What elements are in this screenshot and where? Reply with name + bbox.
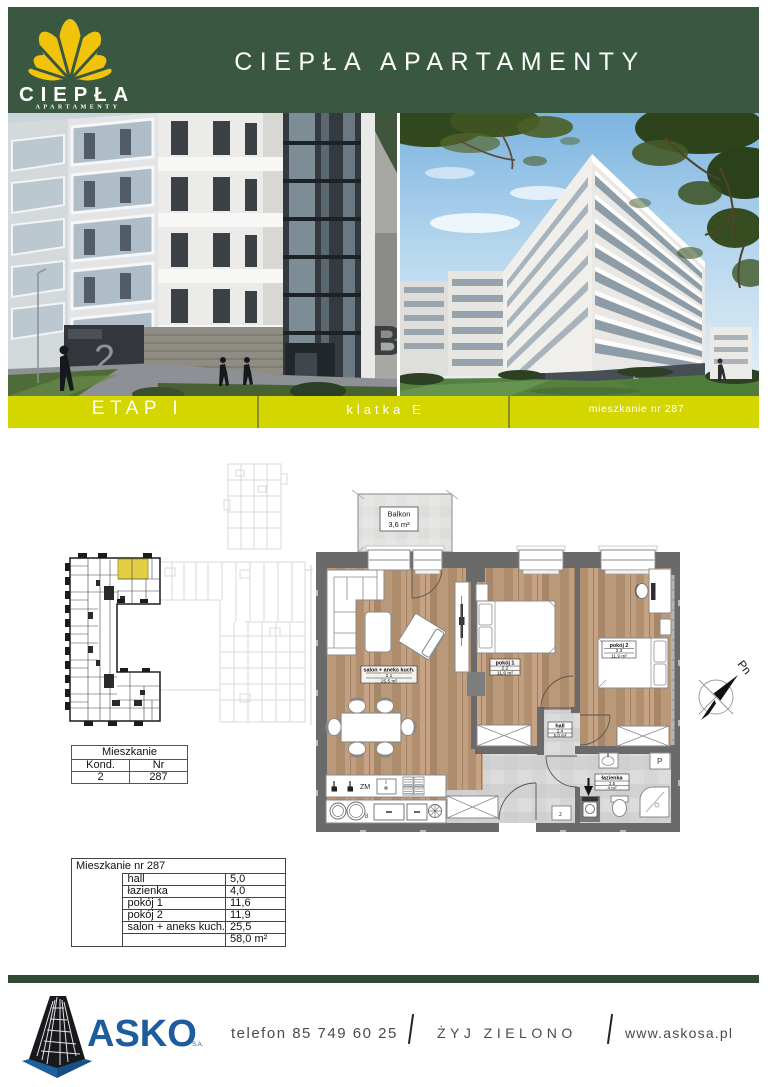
svg-text:ZM: ZM: [360, 784, 370, 791]
svg-text:z: z: [559, 812, 562, 818]
svg-text:S.A.: S.A.: [192, 1042, 204, 1048]
svg-text:4 m²: 4 m²: [608, 786, 618, 791]
svg-text:Balkon: Balkon: [388, 510, 411, 519]
svg-text:3,6 m²: 3,6 m²: [388, 520, 410, 529]
svg-text:2.3: 2.3: [616, 648, 623, 654]
svg-text:11,6 m²: 11,6 m²: [497, 671, 513, 677]
svg-text:B: B: [372, 317, 397, 364]
svg-text:5,0 m²: 5,0 m²: [554, 733, 567, 738]
svg-text:11,9 m²: 11,9 m²: [611, 654, 627, 660]
svg-text:APARTAMENTY: APARTAMENTY: [35, 104, 120, 111]
svg-text:salon + aneks kuch.: salon + aneks kuch.: [363, 668, 415, 674]
svg-text:www.askosa.pl: www.askosa.pl: [624, 1025, 733, 1041]
svg-text:25,5 m²: 25,5 m²: [381, 679, 398, 685]
svg-text:2.1: 2.1: [386, 673, 393, 679]
svg-text:ŻYJ ZIELONO: ŻYJ ZIELONO: [437, 1024, 577, 1041]
svg-text:ASKO: ASKO: [87, 1013, 197, 1055]
svg-text:telefon 85 749 60 25: telefon 85 749 60 25: [231, 1025, 398, 1042]
svg-text:Pn: Pn: [735, 659, 753, 677]
svg-text:P: P: [657, 757, 662, 766]
